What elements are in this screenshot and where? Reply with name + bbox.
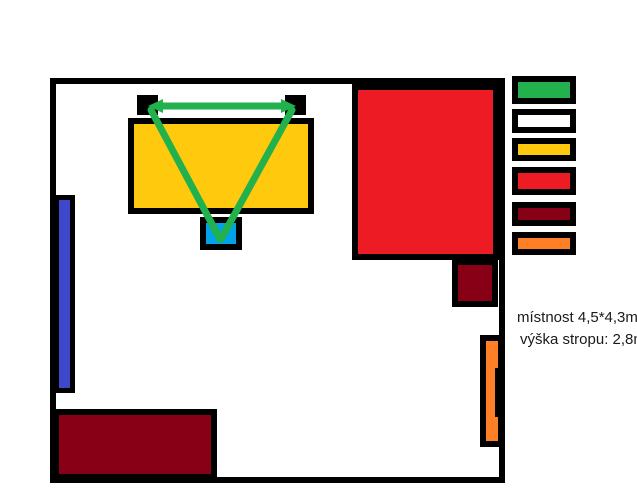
orange-rect-right-wall	[480, 335, 504, 447]
dark-red-rect-bottom	[53, 409, 217, 480]
legend-swatch-dark-red	[512, 202, 576, 226]
wall-notch	[495, 368, 500, 417]
room-size-label: místnost 4,5*4,3m	[517, 309, 637, 326]
legend-swatch-orange	[512, 232, 576, 255]
blue-rect-left-wall	[54, 195, 75, 393]
ceiling-height-label: výška stropu: 2,8m	[520, 331, 637, 348]
black-square-left	[137, 95, 158, 115]
black-square-right	[285, 95, 306, 115]
dark-red-square	[452, 259, 498, 307]
legend-swatch-white	[512, 109, 576, 133]
red-furniture-rect	[352, 84, 499, 260]
floor-plan-canvas: místnost 4,5*4,3m výška stropu: 2,8m	[0, 0, 637, 496]
legend-swatch-red	[512, 167, 576, 195]
cyan-square	[200, 217, 242, 250]
yellow-furniture-rect	[128, 118, 314, 214]
legend-swatch-green	[512, 76, 576, 104]
legend-swatch-yellow	[512, 138, 576, 161]
